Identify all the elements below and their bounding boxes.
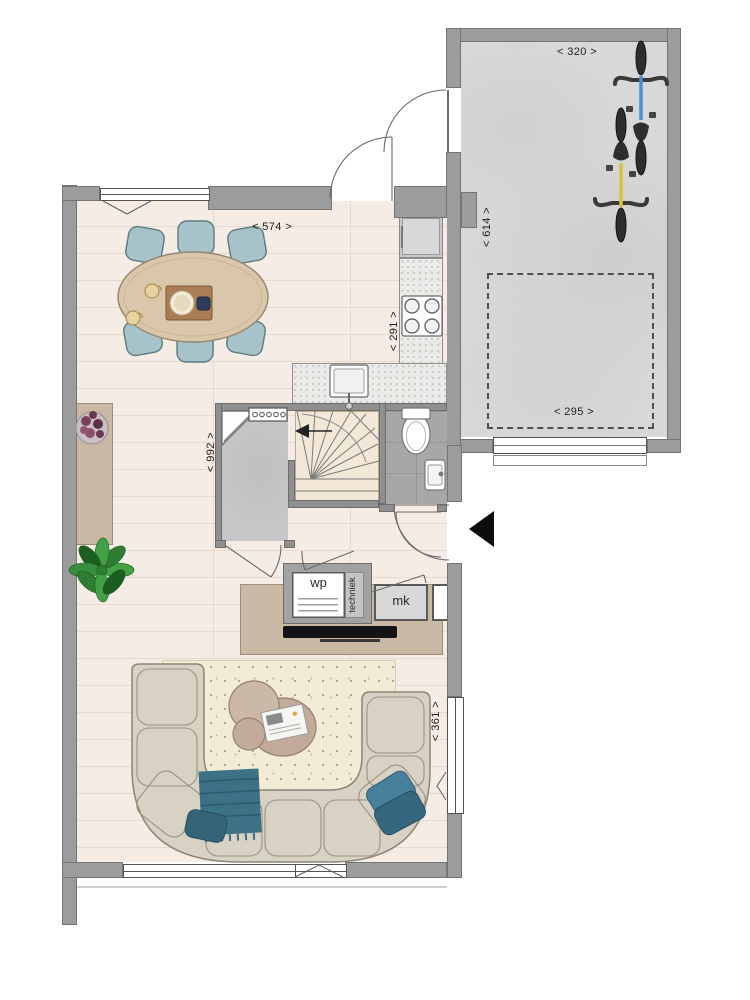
tv-icon <box>283 626 397 642</box>
cooktop-icon <box>402 296 442 336</box>
dim-living-length: < 992 > <box>205 416 217 488</box>
dim-living-width: < 574 > <box>230 221 314 233</box>
serving-tray <box>166 286 212 320</box>
garage-side-door-swing <box>384 90 448 152</box>
kitchen-sink-icon <box>330 365 368 409</box>
dim-garage-entry: < 295 > <box>532 406 616 418</box>
understairs-door-swing <box>302 551 354 570</box>
front-door-swing <box>394 505 449 560</box>
flower-bowl-icon <box>76 411 108 444</box>
dim-garage-length: < 614 > <box>481 191 493 263</box>
tilt-marker-right <box>437 772 446 800</box>
staircase <box>295 411 379 491</box>
floor-plan: < 574 > < 291 > < 992 > < 361 > < 320 > … <box>0 0 750 1000</box>
tilt-marker-bottom <box>295 865 343 877</box>
toilet-sink-icon <box>425 460 445 490</box>
dim-living-window: < 361 > <box>430 685 442 757</box>
coat-hooks-icon <box>249 408 287 421</box>
toilet-icon <box>402 408 430 454</box>
label-meter-cupboard: mk <box>374 594 428 608</box>
dining-set <box>118 221 268 362</box>
sofa <box>132 664 430 862</box>
label-technical: techniek <box>348 560 358 630</box>
dim-garage-width: < 320 > <box>535 46 619 58</box>
label-heat-pump: wp <box>292 576 345 590</box>
plant-icon <box>69 537 134 602</box>
tilt-marker-top <box>103 201 151 214</box>
dim-kitchen-depth: < 291 > <box>388 295 400 367</box>
coffee-table-poufs <box>229 681 316 756</box>
plan-linework <box>0 0 750 1000</box>
hall-door-swing <box>226 545 281 577</box>
entrance-arrow-icon <box>469 511 494 547</box>
meter-cupboard-door-swing <box>372 575 426 592</box>
back-door-swing <box>330 137 392 201</box>
